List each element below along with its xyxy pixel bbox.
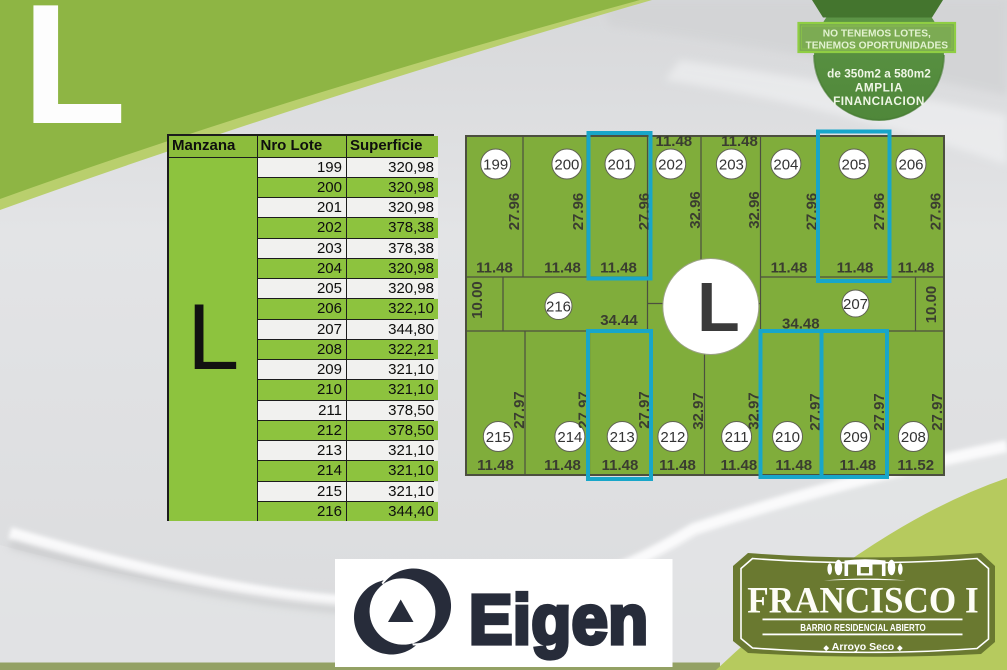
svg-text:Eigen: Eigen: [469, 581, 649, 659]
svg-text:NO TENEMOS LOTES,: NO TENEMOS LOTES,: [823, 29, 931, 40]
svg-text:BARRIO RESIDENCIAL ABIERTO: BARRIO RESIDENCIAL ABIERTO: [800, 622, 926, 633]
svg-text:FRANCISCO I: FRANCISCO I: [747, 580, 978, 621]
svg-text:TENEMOS OPORTUNIDADES: TENEMOS OPORTUNIDADES: [805, 41, 948, 52]
svg-text:AMPLIA: AMPLIA: [855, 81, 903, 95]
svg-text:FINANCIACION: FINANCIACION: [833, 94, 925, 108]
svg-text:de 350m2 a 580m2: de 350m2 a 580m2: [827, 67, 931, 81]
svg-text:◆ Arroyo Seco ◆: ◆ Arroyo Seco ◆: [822, 641, 903, 653]
